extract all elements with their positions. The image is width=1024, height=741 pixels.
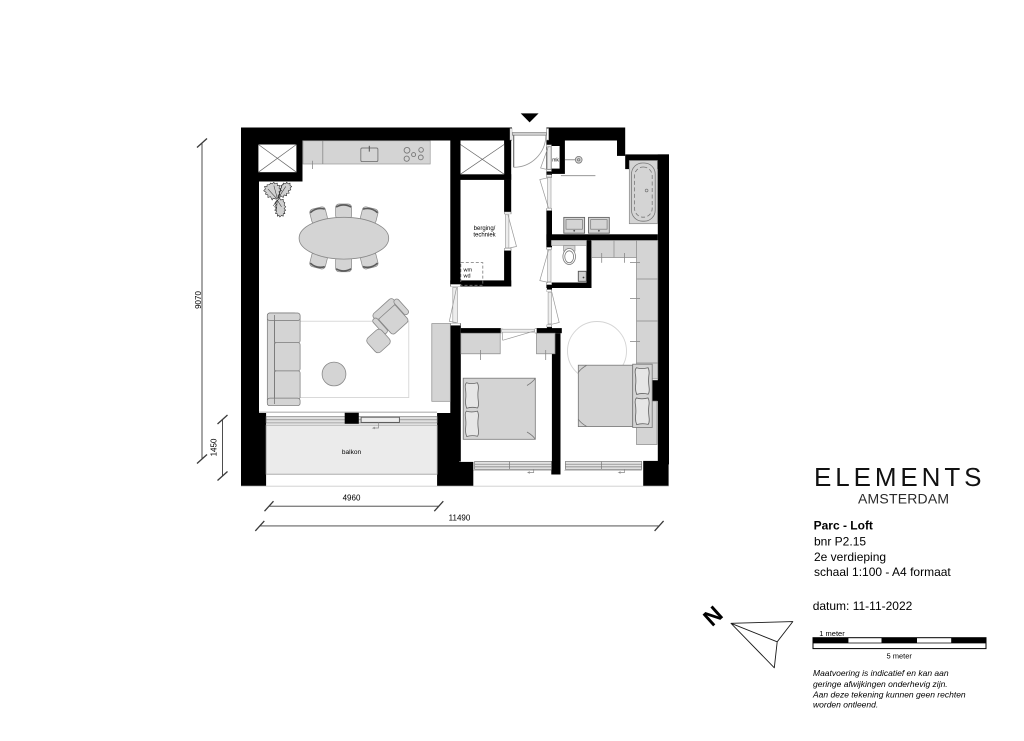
svg-text:5 meter: 5 meter bbox=[886, 652, 912, 661]
svg-text:worden ontleend.: worden ontleend. bbox=[813, 700, 878, 710]
svg-text:datum: 11-11-2022: datum: 11-11-2022 bbox=[813, 599, 913, 613]
svg-text:wd: wd bbox=[463, 274, 471, 280]
svg-text:2e verdieping: 2e verdieping bbox=[814, 550, 886, 564]
svg-text:1 meter: 1 meter bbox=[819, 629, 845, 638]
svg-text:techniek: techniek bbox=[473, 232, 496, 238]
svg-text:balkon: balkon bbox=[342, 449, 362, 456]
svg-text:4960: 4960 bbox=[343, 493, 361, 502]
svg-text:geringe afwijkingen onderhevig: geringe afwijkingen onderhevig zijn. bbox=[813, 679, 948, 689]
svg-text:11490: 11490 bbox=[449, 514, 471, 523]
svg-text:Aan deze tekening kunnen geen: Aan deze tekening kunnen geen rechten bbox=[812, 689, 966, 699]
svg-text:bnr P2.15: bnr P2.15 bbox=[814, 535, 866, 549]
svg-text:AMSTERDAM: AMSTERDAM bbox=[858, 491, 949, 507]
svg-text:ELEMENTS: ELEMENTS bbox=[814, 462, 985, 492]
svg-text:berging/: berging/ bbox=[474, 226, 496, 232]
svg-text:Parc - Loft: Parc - Loft bbox=[814, 519, 873, 533]
svg-text:1450: 1450 bbox=[210, 438, 219, 456]
svg-text:schaal 1:100 - A4 formaat: schaal 1:100 - A4 formaat bbox=[814, 565, 951, 579]
svg-text:mk: mk bbox=[552, 158, 559, 164]
svg-text:9070: 9070 bbox=[194, 291, 203, 309]
svg-text:Maatvoering is indicatief en k: Maatvoering is indicatief en kan aan bbox=[813, 668, 949, 678]
